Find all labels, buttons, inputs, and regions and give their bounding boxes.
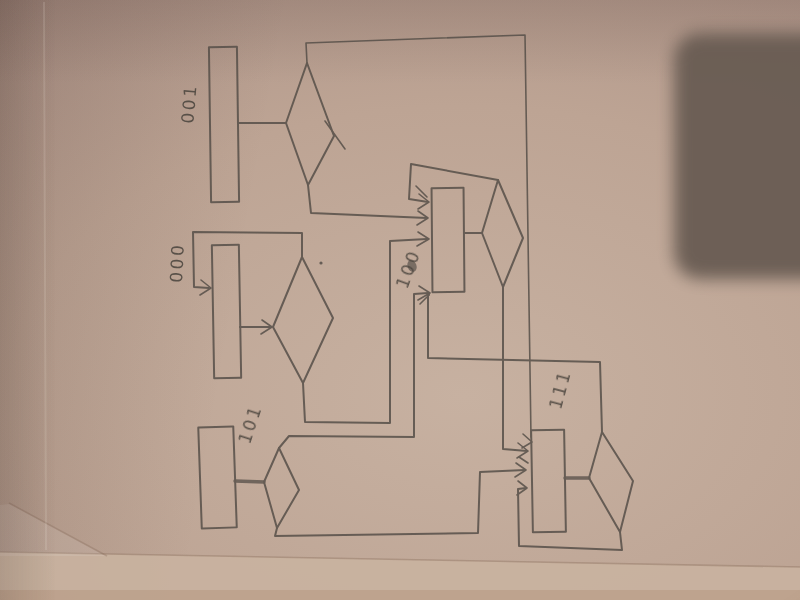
state-100-box	[432, 188, 465, 292]
state-100-diamond	[482, 180, 523, 287]
state-111-box	[531, 430, 566, 533]
state-100-label: 100	[392, 247, 424, 291]
paper-fold-crease	[0, 2, 107, 556]
edge-100-selfloop	[409, 164, 498, 209]
state-001-box	[209, 47, 239, 202]
state-000-label: 000	[166, 242, 188, 283]
diagram-sketch: 001 000 100 101 111	[0, 0, 800, 600]
state-001-label: 001	[177, 83, 200, 125]
node-labels: 001 000 100 101 111	[166, 83, 575, 447]
state-111-group	[531, 430, 633, 533]
state-101-box	[198, 426, 237, 528]
edge-000-selfloop	[193, 232, 302, 295]
edge-100-to-111	[503, 287, 528, 458]
edge-001-to-111	[306, 35, 532, 448]
pencil-speck	[319, 261, 322, 264]
stray-slash-mark	[325, 121, 345, 149]
state-111-diamond	[589, 432, 633, 532]
state-001-group	[209, 47, 345, 202]
edge-111-to-100	[420, 294, 602, 432]
edge-101-to-111	[275, 457, 528, 536]
edge-101-to-100	[279, 286, 430, 448]
state-000-group	[212, 245, 333, 383]
paper-bottom-edge	[0, 552, 800, 600]
state-000-diamond	[273, 257, 333, 383]
state-000-box	[212, 245, 241, 378]
paper-photo: 001 000 100 101 111	[0, 0, 800, 600]
arrowhead	[515, 457, 528, 477]
state-101-diamond	[264, 448, 299, 528]
state-101-connector	[235, 481, 264, 482]
pencil-drawing	[193, 35, 633, 550]
arrowhead	[416, 186, 429, 209]
state-101-label: 101	[235, 402, 266, 446]
state-111-label: 111	[545, 368, 575, 412]
